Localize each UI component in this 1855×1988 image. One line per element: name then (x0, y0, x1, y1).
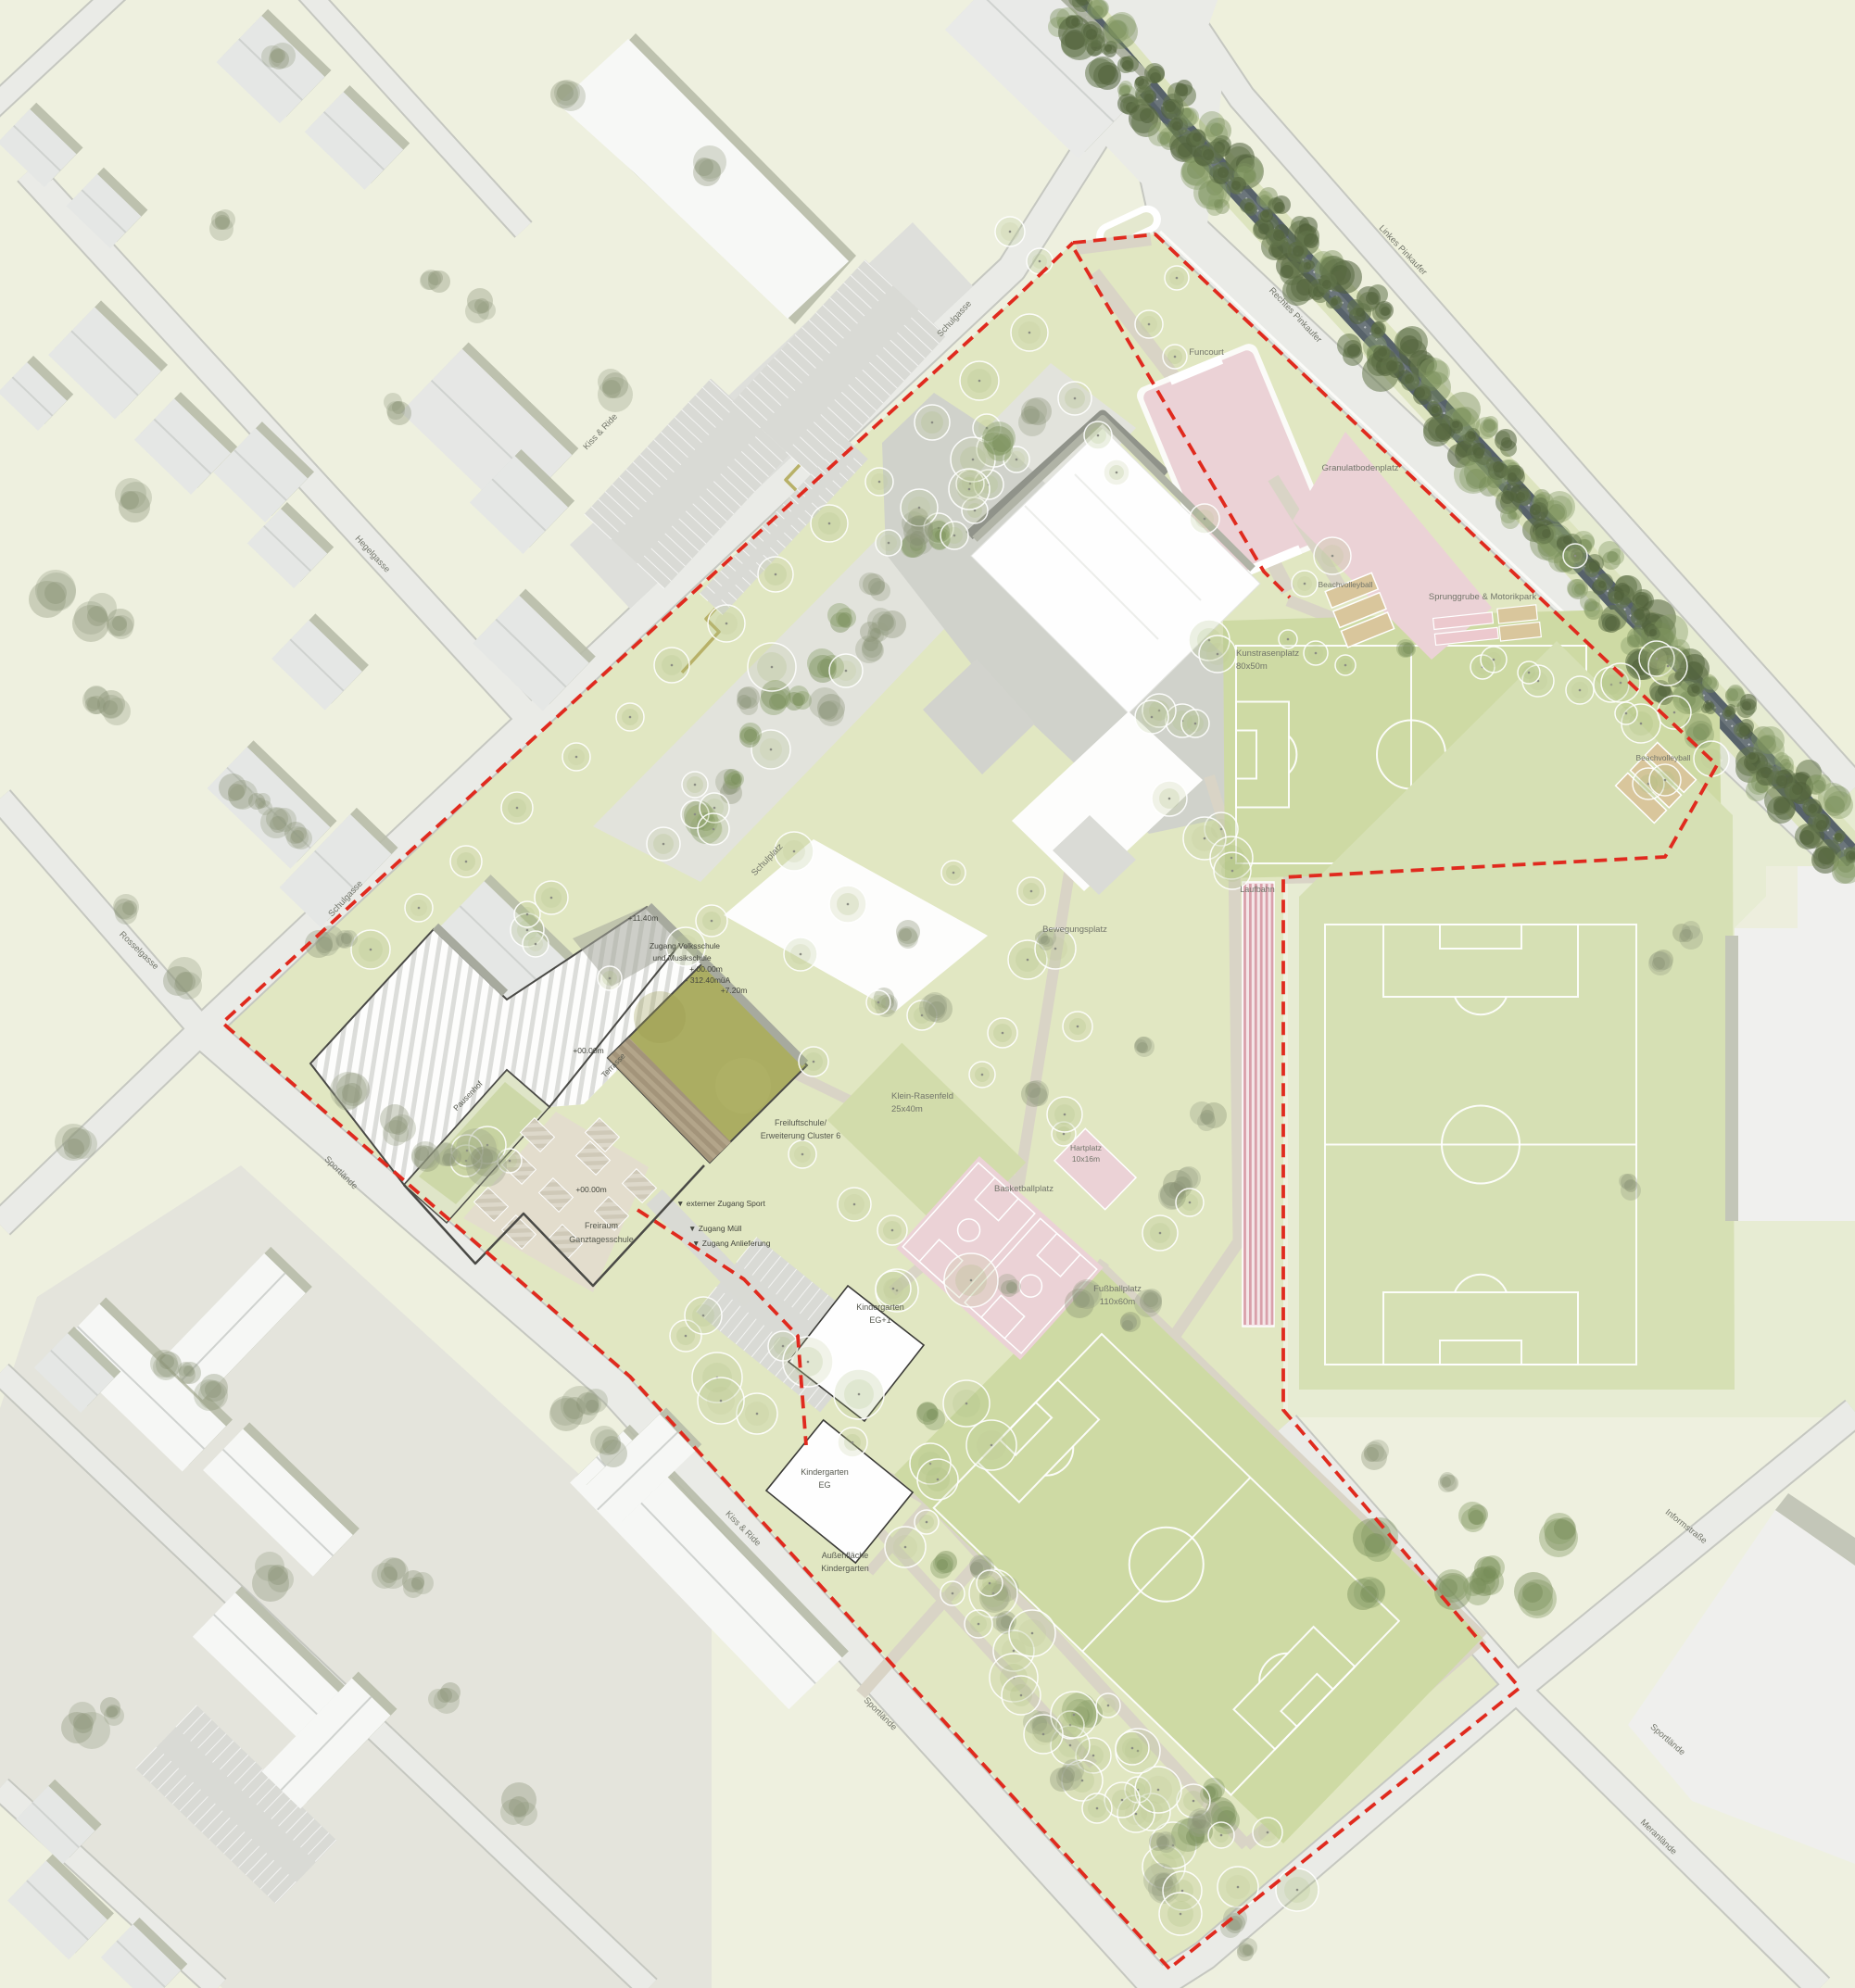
svg-text:Freiraum: Freiraum (585, 1221, 618, 1230)
svg-text:+11.40m: +11.40m (628, 913, 659, 923)
svg-text:Fußballplatz: Fußballplatz (1093, 1284, 1142, 1294)
svg-text:25x40m: 25x40m (891, 1104, 923, 1114)
svg-text:Bewegungsplatz: Bewegungsplatz (1042, 925, 1107, 935)
svg-text:+00.00m: +00.00m (573, 1046, 603, 1055)
svg-text:Hartplatz: Hartplatz (1070, 1143, 1102, 1152)
svg-text:- 312.40müA: - 312.40müA (686, 975, 731, 985)
svg-text:Kindergarten: Kindergarten (821, 1564, 869, 1573)
svg-text:EG: EG (818, 1480, 830, 1490)
svg-text:Freiluftschule/: Freiluftschule/ (775, 1118, 827, 1127)
svg-text:▼ Zugang Müll: ▼ Zugang Müll (688, 1224, 742, 1233)
svg-text:▼ Zugang Anlieferung: ▼ Zugang Anlieferung (692, 1239, 771, 1248)
svg-text:+ 00.00m: + 00.00m (689, 964, 723, 974)
svg-text:10x16m: 10x16m (1072, 1154, 1100, 1164)
svg-text:Beachvolleyball: Beachvolleyball (1635, 753, 1690, 762)
svg-text:Granulatbodenplatz: Granulatbodenplatz (1322, 463, 1399, 473)
svg-text:Klein-Rasenfeld: Klein-Rasenfeld (891, 1091, 953, 1101)
svg-text:Sprunggrube & Motorikpark: Sprunggrube & Motorikpark (1429, 592, 1536, 602)
svg-text:Beachvolleyball: Beachvolleyball (1318, 580, 1372, 589)
svg-text:und Musikschule: und Musikschule (652, 953, 712, 963)
svg-text:Laufbahn: Laufbahn (1240, 885, 1275, 894)
svg-text:EG+1: EG+1 (869, 1315, 890, 1325)
svg-text:Ganztagesschule: Ganztagesschule (569, 1235, 634, 1244)
svg-text:Kindergarten: Kindergarten (801, 1467, 849, 1477)
svg-text:Funcourt: Funcourt (1189, 347, 1224, 358)
svg-text:Kindergarten: Kindergarten (856, 1302, 904, 1312)
svg-text:▼ externer Zugang Sport: ▼ externer Zugang Sport (676, 1199, 765, 1208)
svg-text:80x50m: 80x50m (1236, 661, 1268, 672)
svg-text:Kunstrasenplatz: Kunstrasenplatz (1236, 648, 1299, 659)
svg-text:110x60m: 110x60m (1100, 1297, 1135, 1307)
svg-text:Außenfläche: Außenfläche (822, 1551, 869, 1560)
svg-text:Zugang Volksschule: Zugang Volksschule (650, 941, 720, 950)
svg-text:+00.00m: +00.00m (575, 1185, 606, 1194)
svg-text:+7.20m: +7.20m (721, 986, 748, 995)
svg-text:Basketballplatz: Basketballplatz (994, 1184, 1054, 1194)
svg-text:Erweiterung Cluster 6: Erweiterung Cluster 6 (761, 1131, 841, 1140)
